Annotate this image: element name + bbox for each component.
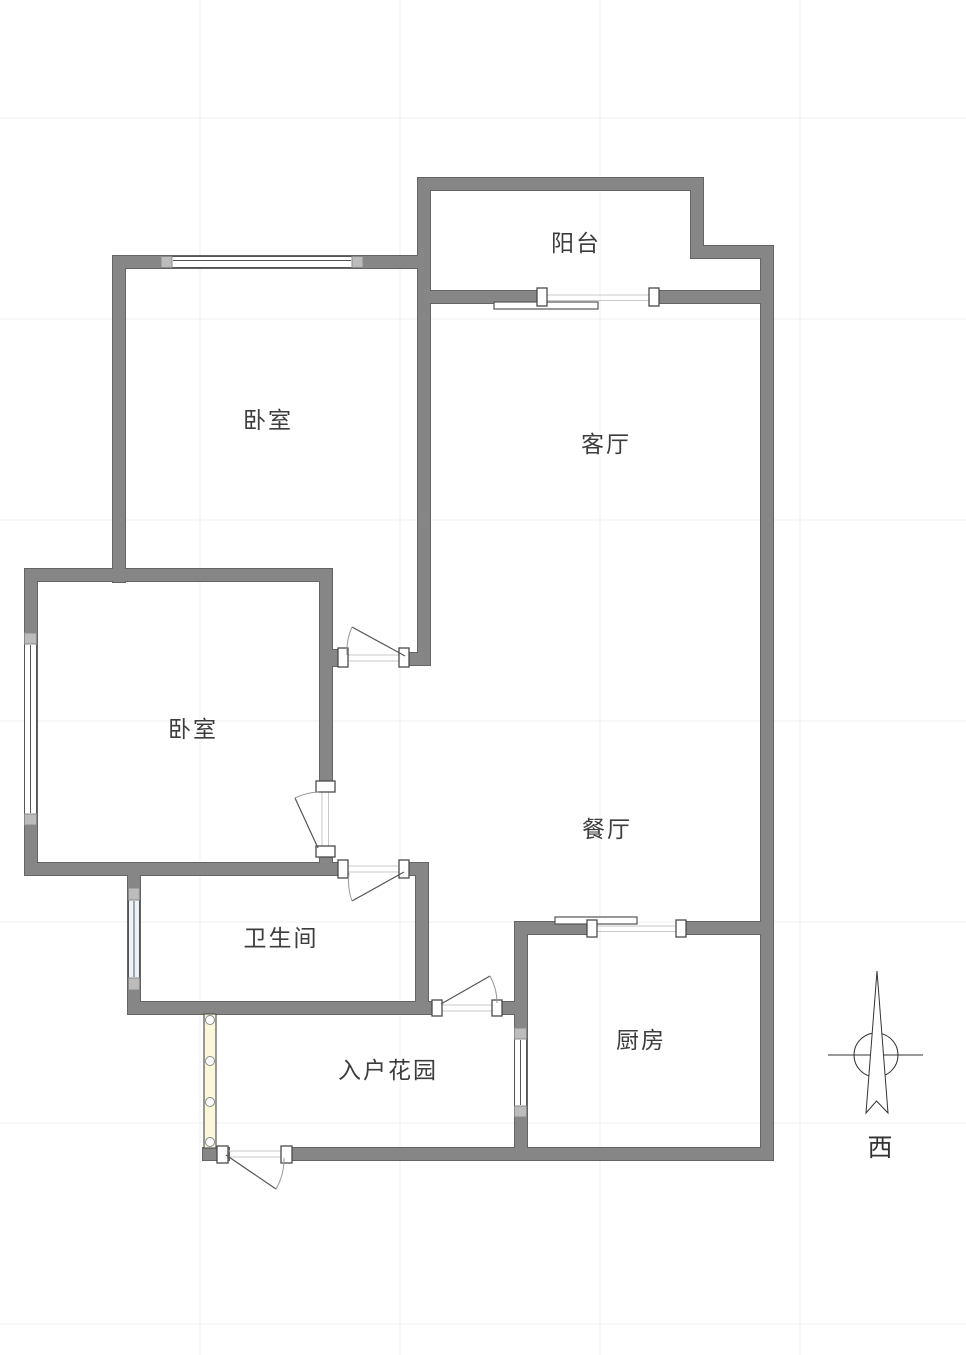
garden-folding-door-hinge [206, 1016, 215, 1025]
wall [25, 569, 332, 581]
wall [656, 291, 773, 303]
door-jamb [432, 1000, 442, 1016]
bathroom-door-swing-arc [348, 873, 352, 901]
garden-folding-door [204, 1014, 216, 1148]
bedroom1-window [161, 257, 363, 268]
garden-folding-door-hinge [206, 1138, 215, 1147]
kitchen-window-cap [515, 1106, 527, 1117]
garden-folding-door-hinge [206, 1057, 215, 1066]
bathroom-door-leaf [352, 872, 404, 901]
garden-dining-door-swing-arc [490, 976, 497, 1003]
wall [128, 1002, 435, 1014]
wall [113, 256, 125, 582]
door-jamb [587, 920, 597, 937]
garden-folding-door-hinge [206, 1098, 215, 1107]
compass-arrow-icon [866, 971, 888, 1113]
bedroom2-door-swing-arc [295, 792, 319, 798]
wall [691, 246, 773, 258]
bedroom2-window-cap [25, 633, 37, 644]
wall [418, 178, 703, 190]
bedroom2-window-cap [25, 814, 37, 825]
floorplan-drawing [0, 0, 966, 1355]
door-jamb [338, 860, 348, 878]
bedroom1-window-cap [352, 257, 363, 268]
entry-front-door-leaf [226, 1155, 276, 1189]
wall [418, 291, 540, 303]
wall [679, 922, 773, 934]
door-jamb [316, 846, 335, 857]
door-jamb [649, 288, 659, 306]
bedroom2-door-leaf [295, 798, 318, 848]
bathroom-window-cap [129, 888, 140, 900]
bedroom1-window-cap [161, 257, 172, 268]
floor-plan: 阳台 卧室 客厅 卧室 餐厅 卫生间 入户花园 厨房 西 [0, 0, 966, 1355]
door-jamb [399, 860, 409, 878]
wall [283, 1148, 773, 1160]
kitchen-window-cap [515, 1028, 527, 1039]
door-jamb [676, 920, 686, 937]
garden-dining-door-leaf [441, 976, 490, 1004]
wall [25, 863, 341, 875]
wall [761, 246, 773, 1160]
wall [320, 569, 332, 791]
door-jamb [399, 648, 409, 667]
wall [418, 178, 430, 665]
bathroom-window-cap [129, 978, 140, 990]
bedroom1-door-leaf [352, 627, 405, 656]
door-jamb [537, 288, 547, 306]
door-jamb [217, 1146, 228, 1163]
door-jamb [316, 781, 335, 792]
wall [416, 863, 428, 1014]
door-jamb [281, 1146, 292, 1163]
